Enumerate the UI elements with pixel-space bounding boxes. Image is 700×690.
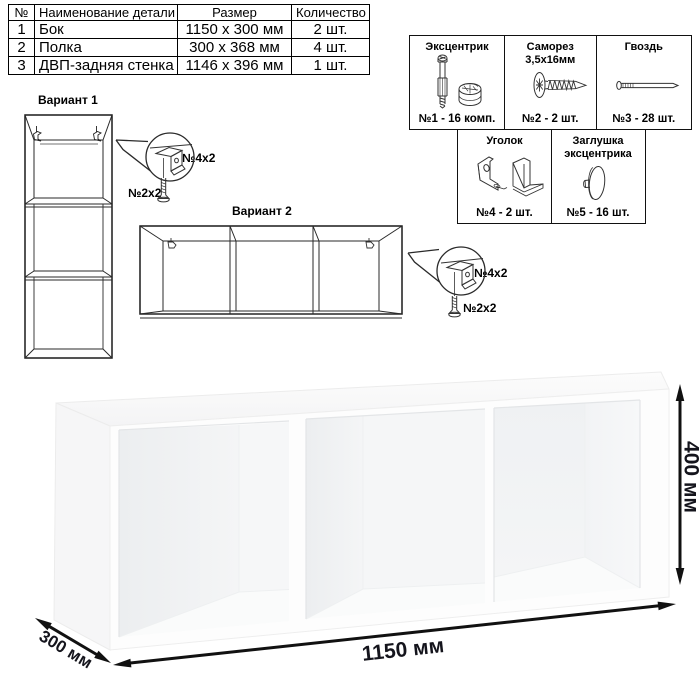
svg-text:1150 мм: 1150 мм xyxy=(361,634,445,666)
svg-text:400 мм: 400 мм xyxy=(679,441,700,513)
